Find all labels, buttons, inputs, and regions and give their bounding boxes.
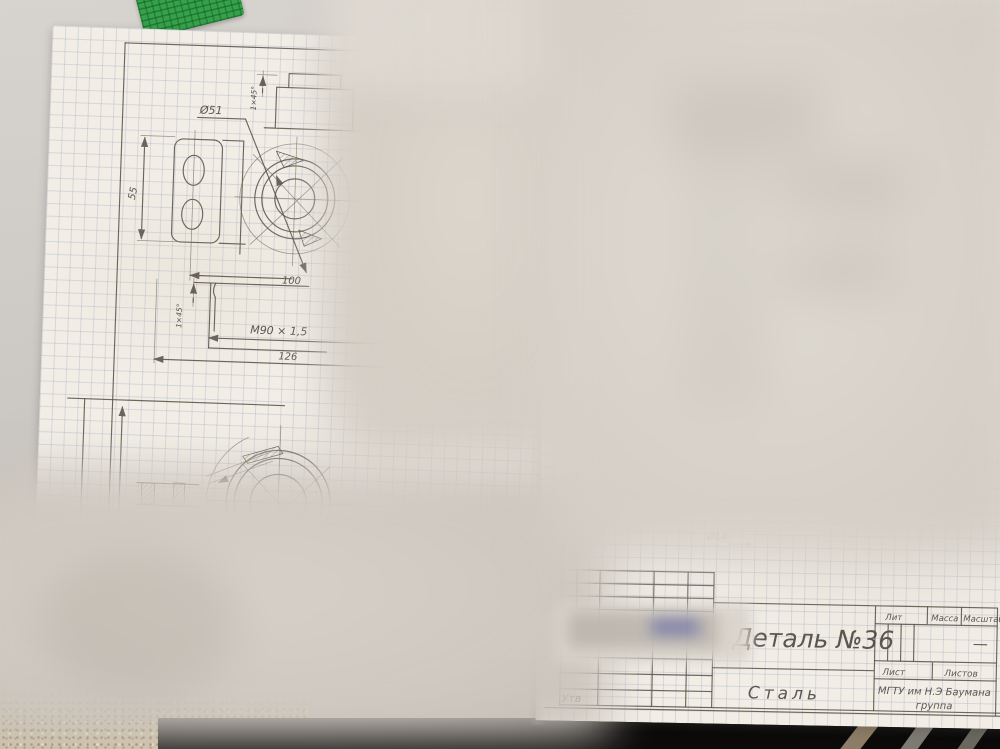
- sheets-label: Листов: [943, 669, 978, 680]
- dia-51-label: Ø51: [199, 103, 223, 117]
- part-top-view: 55 Ø51 100: [124, 101, 362, 289]
- notebook-spine-shadow: [528, 540, 546, 725]
- right-graph-paper-sheet: Ø14 Утв Деталь №36: [535, 0, 1000, 729]
- organization-line1: МГТУ им Н.Э Баумана: [878, 686, 991, 699]
- faint-dimension: Ø14: [706, 530, 753, 544]
- title-block: Утв Деталь №36 Сталь Лит Масса Масштаб —…: [545, 544, 1000, 716]
- chamfer-top-label: 1×45°: [249, 86, 259, 111]
- dim-55-label: 55: [127, 186, 140, 201]
- dim-126-label: 126: [278, 351, 297, 363]
- hatched-wedge: [298, 230, 322, 247]
- faint-dia-label: Ø14: [706, 530, 728, 542]
- approved-label: Утв: [562, 692, 582, 705]
- scale-header: Масштаб: [963, 614, 1000, 625]
- thread-label: М90 × 1,5: [250, 323, 308, 338]
- chamfer-mid-label: 1×45°: [174, 303, 184, 328]
- material-label: Сталь: [748, 683, 821, 704]
- lit-header: Лит: [884, 613, 903, 623]
- pencil-drawing-left: 1×45° 55: [31, 25, 567, 663]
- organization-line2: группа: [916, 701, 953, 713]
- scale-value: —: [973, 635, 988, 653]
- hatched-section: [173, 483, 185, 506]
- sheet-label: Лист: [881, 668, 906, 678]
- photo-of-engineering-drawings: 1×45° 55: [0, 0, 1000, 749]
- left-graph-paper-sheet: 1×45° 55: [31, 25, 567, 663]
- title-block-drawing: Ø14 Утв Деталь №36: [535, 0, 1000, 729]
- shaft-step-section: 1×45° М90 × 1,5 126: [154, 277, 389, 371]
- part-title: Деталь №36: [732, 623, 895, 655]
- top-neck-feature: 1×45°: [248, 70, 361, 131]
- part-bottom-view: [62, 398, 358, 581]
- mass-header: Масса: [931, 614, 958, 625]
- hatched-section: [141, 483, 155, 504]
